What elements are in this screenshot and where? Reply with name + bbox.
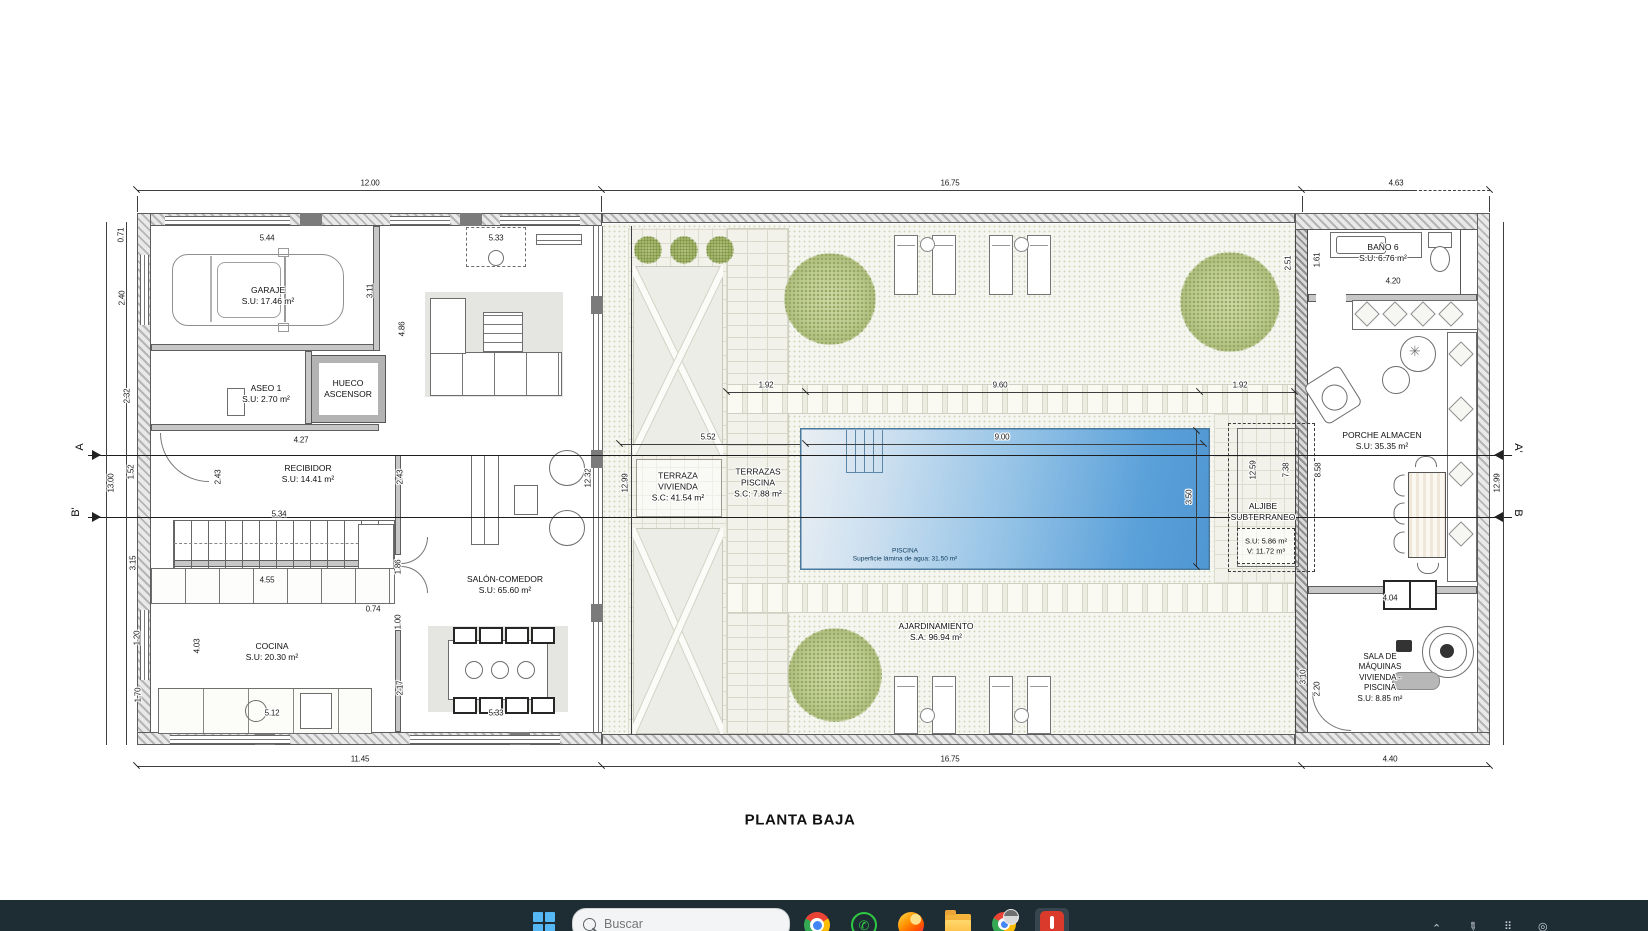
dim-label: 1.86 [394, 560, 403, 575]
vent-circle [488, 250, 504, 266]
dim-label: 4.03 [193, 639, 202, 654]
dim-label: 4.86 [398, 322, 407, 337]
room-label-terraza-vivienda: TERRAZAVIVIENDAS.C: 41.54 m² [652, 470, 704, 503]
porch-armchair [1303, 364, 1363, 425]
dim-label: 1.20 [133, 631, 142, 646]
chrome-profile-icon[interactable] [992, 912, 1018, 931]
dim-label: 1.70 [134, 688, 143, 703]
tv-unit [471, 455, 499, 545]
dim-label: 3.11 [366, 284, 375, 298]
section-marker-a: A [74, 443, 86, 450]
dim-label: 16.75 [940, 755, 959, 764]
right-wall-top [1295, 213, 1490, 230]
tree-icon [1180, 252, 1280, 352]
section-marker-a-prime: A' [1512, 443, 1524, 452]
start-button[interactable] [533, 912, 555, 931]
taskbar: ⌃ ✎ ⠿ ◎ [0, 900, 1648, 931]
dining-table [448, 640, 548, 700]
room-label-ajardinamiento: AJARDINAMIENTOS.A: 96.94 m² [899, 621, 974, 643]
dim-label: 11.45 [351, 755, 369, 764]
dim-label: 12.59 [1249, 460, 1258, 479]
sun-lounger [894, 676, 918, 734]
section-marker-b-prime: B' [70, 507, 82, 516]
door-arc [401, 566, 428, 593]
pool-steps [846, 430, 883, 473]
section-line-a [88, 455, 1512, 456]
dim-label: 4.04 [1383, 594, 1398, 603]
chair [531, 627, 555, 644]
window [410, 735, 560, 744]
cooktop [300, 693, 332, 729]
stepping-stones-bottom [727, 583, 1295, 613]
room-label-salon-comedor: SALÓN-COMEDORS.U: 65.60 m² [467, 574, 543, 596]
avatar [1003, 909, 1019, 925]
room-label-porche-almacen: PORCHE ALMACENS.U: 35.35 m² [1342, 430, 1421, 452]
aljibe-data-box: S.U: 5.86 m²V: 11.72 m³ [1237, 528, 1295, 564]
desktop-screen: ✳ A B' A' B [0, 0, 1648, 931]
dim-label: 2.17 [396, 681, 405, 696]
sofa [430, 352, 562, 396]
search-box[interactable] [572, 908, 790, 931]
window [390, 216, 450, 225]
chair [505, 627, 529, 644]
chair [453, 697, 477, 714]
room-label-terrazas-piscina: TERRAZASPISCINAS.C: 7.88 m² [734, 466, 782, 499]
sun-lounger [1027, 676, 1051, 734]
window [165, 216, 290, 225]
shrub-icon [670, 236, 698, 264]
dim-label: 4.55 [260, 576, 275, 585]
dim-label: 0.74 [366, 605, 381, 614]
side-table [1014, 237, 1029, 252]
tray-pen-icon[interactable]: ✎ [1465, 919, 1480, 931]
dim-label: 13.00 [107, 473, 116, 492]
porch-dining-table [1408, 472, 1446, 558]
room-label-aseo: ASEO 1S.U: 2.70 m² [242, 383, 290, 405]
cabinet [1409, 580, 1437, 610]
dim-label: 2.51 [1284, 256, 1293, 271]
shrub-icon [634, 236, 662, 264]
section-marker-b: B [1512, 509, 1524, 516]
dim-label: 2.43 [396, 470, 405, 485]
machine-valve [1396, 640, 1412, 652]
chrome-icon[interactable] [804, 912, 830, 931]
door-arc [160, 433, 209, 482]
dim-label: 1.00 [394, 615, 403, 630]
dim-label: 3.50 [1185, 490, 1194, 505]
tree-icon [788, 628, 882, 722]
dim-label: 8.58 [1314, 463, 1323, 478]
dim-label: 4.40 [1383, 755, 1398, 764]
tray-chevron-icon[interactable]: ⌃ [1432, 922, 1441, 931]
dim-label: 4.20 [1386, 277, 1401, 286]
round-table [1382, 366, 1410, 394]
window [500, 216, 580, 225]
dim-label: 4.27 [294, 436, 309, 445]
shrub-icon [706, 236, 734, 264]
search-icon [583, 918, 596, 931]
garden-wall-top [602, 213, 1295, 223]
window [170, 735, 290, 744]
windows-logo-icon [533, 912, 543, 922]
side-table [920, 708, 935, 723]
dim-label: 5.44 [260, 234, 275, 243]
dim-label: 12.00 [360, 179, 379, 188]
chair [1394, 503, 1405, 525]
chair [1394, 475, 1405, 497]
page-title: PLANTA BAJA [745, 812, 856, 829]
room-label-garaje: GARAJES.U: 17.46 m² [242, 285, 294, 307]
chair [479, 627, 503, 644]
dim-label: 1.92 [1233, 381, 1248, 390]
sun-lounger [1027, 235, 1051, 295]
side-table [1014, 708, 1029, 723]
pool-pump [1422, 626, 1474, 678]
chair [505, 697, 529, 714]
room-label-piscina: PISCINASuperficie lámina de agua: 31.50 … [853, 548, 957, 565]
chair [1415, 456, 1437, 467]
sun-lounger [894, 235, 918, 295]
dim-label: 2.40 [118, 291, 127, 306]
chair [1394, 532, 1405, 554]
dim-label: 5.52 [701, 433, 716, 442]
dim-label: 2.32 [123, 389, 132, 404]
dim-label: 12.99 [621, 473, 630, 492]
planter-box-top [633, 266, 723, 456]
stepping-stones-top [727, 384, 1295, 414]
chair [1417, 563, 1439, 574]
dim-label: 5.34 [272, 510, 287, 519]
sun-lounger [989, 676, 1013, 734]
dim-label: 5.33 [489, 234, 504, 243]
radiator [536, 234, 582, 245]
armchair [549, 510, 585, 546]
tray-language-icon[interactable]: ◎ [1538, 920, 1548, 931]
whatsapp-icon[interactable] [851, 912, 877, 931]
dim-label: 5.12 [265, 709, 280, 718]
side-table [514, 485, 538, 515]
planter-box-bottom [633, 528, 723, 734]
dim-label: 2.20 [1313, 682, 1322, 697]
door-arc [401, 537, 428, 564]
right-wall-right [1477, 213, 1490, 745]
red-app-icon[interactable] [1040, 911, 1064, 931]
dim-label: 12.32 [584, 468, 593, 487]
chair [531, 697, 555, 714]
right-wall-bottom [1295, 732, 1490, 745]
garden-wall-bottom [602, 734, 1295, 745]
room-label-bano6: BAÑO 6S.U: 6.76 m² [1359, 242, 1407, 264]
dim-label: 1.52 [127, 465, 136, 480]
file-explorer-icon[interactable] [945, 914, 971, 931]
sun-lounger [932, 676, 956, 734]
room-label-aljibe: ALJIBESUBTERRANEO [1231, 501, 1296, 523]
floor-plan-drawing: ✳ A B' A' B [0, 0, 1648, 900]
window [140, 255, 149, 325]
dim-label: 16.75 [940, 179, 959, 188]
chair [453, 627, 477, 644]
side-table [920, 237, 935, 252]
door-arc [1312, 692, 1351, 731]
dim-label: 5.33 [489, 709, 504, 718]
room-label-recibidor: RECIBIDORS.U: 14.41 m² [282, 463, 334, 485]
dim-label: 2.43 [214, 470, 223, 485]
dim-label: 12.99 [1493, 473, 1502, 492]
dim-label: 3.15 [129, 556, 138, 571]
room-label-cocina: COCINAS.U: 20.30 m² [246, 641, 298, 663]
section-line-b [88, 517, 1512, 518]
tray-grid-icon[interactable]: ⠿ [1504, 920, 1513, 931]
dim-label: 0.71 [117, 228, 126, 243]
dim-label: 9.00 [995, 433, 1010, 442]
firefox-icon[interactable] [898, 912, 924, 931]
shelf-unit [483, 312, 523, 352]
room-label-hueco-ascensor: HUECOASCENSOR [324, 378, 372, 400]
dim-label: 7.38 [1282, 463, 1291, 478]
toilet-bowl [1430, 246, 1450, 272]
dim-label: 1.92 [759, 381, 774, 390]
dim-label: 9.60 [993, 381, 1008, 390]
dim-label: 4.63 [1389, 179, 1404, 188]
search-input[interactable] [602, 916, 756, 931]
dim-label: 1.61 [1313, 253, 1322, 268]
sun-lounger [989, 235, 1013, 295]
dim-label: 3.10 [1299, 670, 1308, 685]
round-table-flower: ✳ [1400, 336, 1436, 372]
sun-lounger [932, 235, 956, 295]
sofa-corner [430, 298, 466, 354]
kitchen-counter [151, 568, 395, 604]
tree-icon [784, 253, 876, 345]
room-label-sala-maquinas: SALA DEMÁQUINAS VIVIENDA -PISCINA S.U: 8… [1358, 652, 1403, 704]
